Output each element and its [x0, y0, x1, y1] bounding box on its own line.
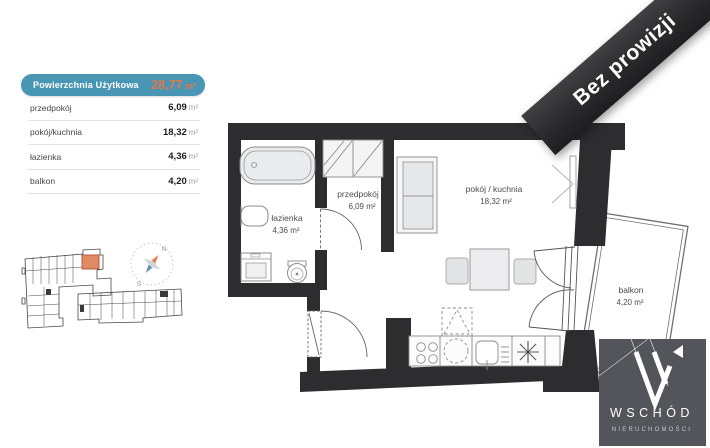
chair-right: [514, 259, 536, 284]
entrance-door: [308, 311, 367, 357]
agency-logo: WSCHÓD NIERUCHOMOŚCI: [599, 339, 706, 446]
row-label: pokój/kuchnia: [30, 127, 82, 137]
room-area-lazienka: 4,36 m²: [272, 226, 299, 235]
row-label: łazienka: [30, 152, 61, 162]
window-symbol: [552, 156, 576, 208]
room-label-lazienka: łazienka: [271, 213, 302, 223]
logo-subtitle: NIERUCHOMOŚCI: [612, 425, 692, 433]
floorplan-page: N S: [0, 0, 710, 448]
bathroom-sink: [241, 206, 268, 226]
row-value: 4,36 m²: [168, 151, 198, 162]
bathroom-door: [321, 209, 362, 250]
kitchen-counter: [409, 308, 560, 370]
site-plan: [22, 249, 182, 328]
area-table-row-pokoj-kuchnia: pokój/kuchnia 18,32 m²: [28, 121, 200, 146]
chair-left: [446, 258, 468, 284]
water-heater-dashed: [442, 308, 472, 336]
row-value: 6,09 m²: [168, 102, 198, 113]
area-table-row-przedpokoj: przedpokój 6,09 m²: [28, 96, 200, 121]
wardrobe: [323, 140, 383, 177]
compass-icon: N S: [131, 243, 173, 288]
row-label: przedpokój: [30, 103, 72, 113]
row-label: balkon: [30, 176, 55, 186]
room-area-pokoj-kuchnia: 18,32 m²: [480, 197, 512, 206]
room-label-pokoj-kuchnia: pokój / kuchnia: [466, 184, 523, 194]
fridge-symbol: [517, 341, 539, 363]
area-table-row-lazienka: łazienka 4,36 m²: [28, 145, 200, 170]
dining-table: [470, 249, 509, 290]
compass-south-label: S: [137, 281, 142, 288]
toilet: [288, 261, 307, 283]
washing-machine: [241, 253, 271, 281]
area-table-header-label: Powierzchnia Użytkowa: [33, 80, 139, 90]
bed: [397, 157, 437, 233]
balcony-french-doors: [529, 246, 578, 331]
site-unit-highlight: [82, 255, 99, 269]
area-table-header: Powierzchnia Użytkowa 28,77 m²: [21, 74, 205, 96]
room-area-przedpokoj: 6,09 m²: [348, 202, 375, 211]
building-outline-b: [78, 289, 182, 323]
logo-brand: WSCHÓD: [610, 405, 694, 420]
area-table-row-balkon: balkon 4,20 m²: [28, 170, 200, 195]
room-label-przedpokoj: przedpokój: [337, 189, 379, 199]
room-label-balkon: balkon: [618, 285, 643, 295]
row-value: 4,20 m²: [168, 176, 198, 187]
area-table: Powierzchnia Użytkowa 28,77 m² przedpokó…: [21, 74, 205, 194]
area-table-header-value: 28,77 m²: [151, 78, 196, 92]
bathtub: [240, 147, 315, 184]
room-area-balkon: 4,20 m²: [616, 298, 643, 307]
compass-north-label: N: [162, 246, 167, 253]
row-value: 18,32 m²: [163, 127, 198, 138]
